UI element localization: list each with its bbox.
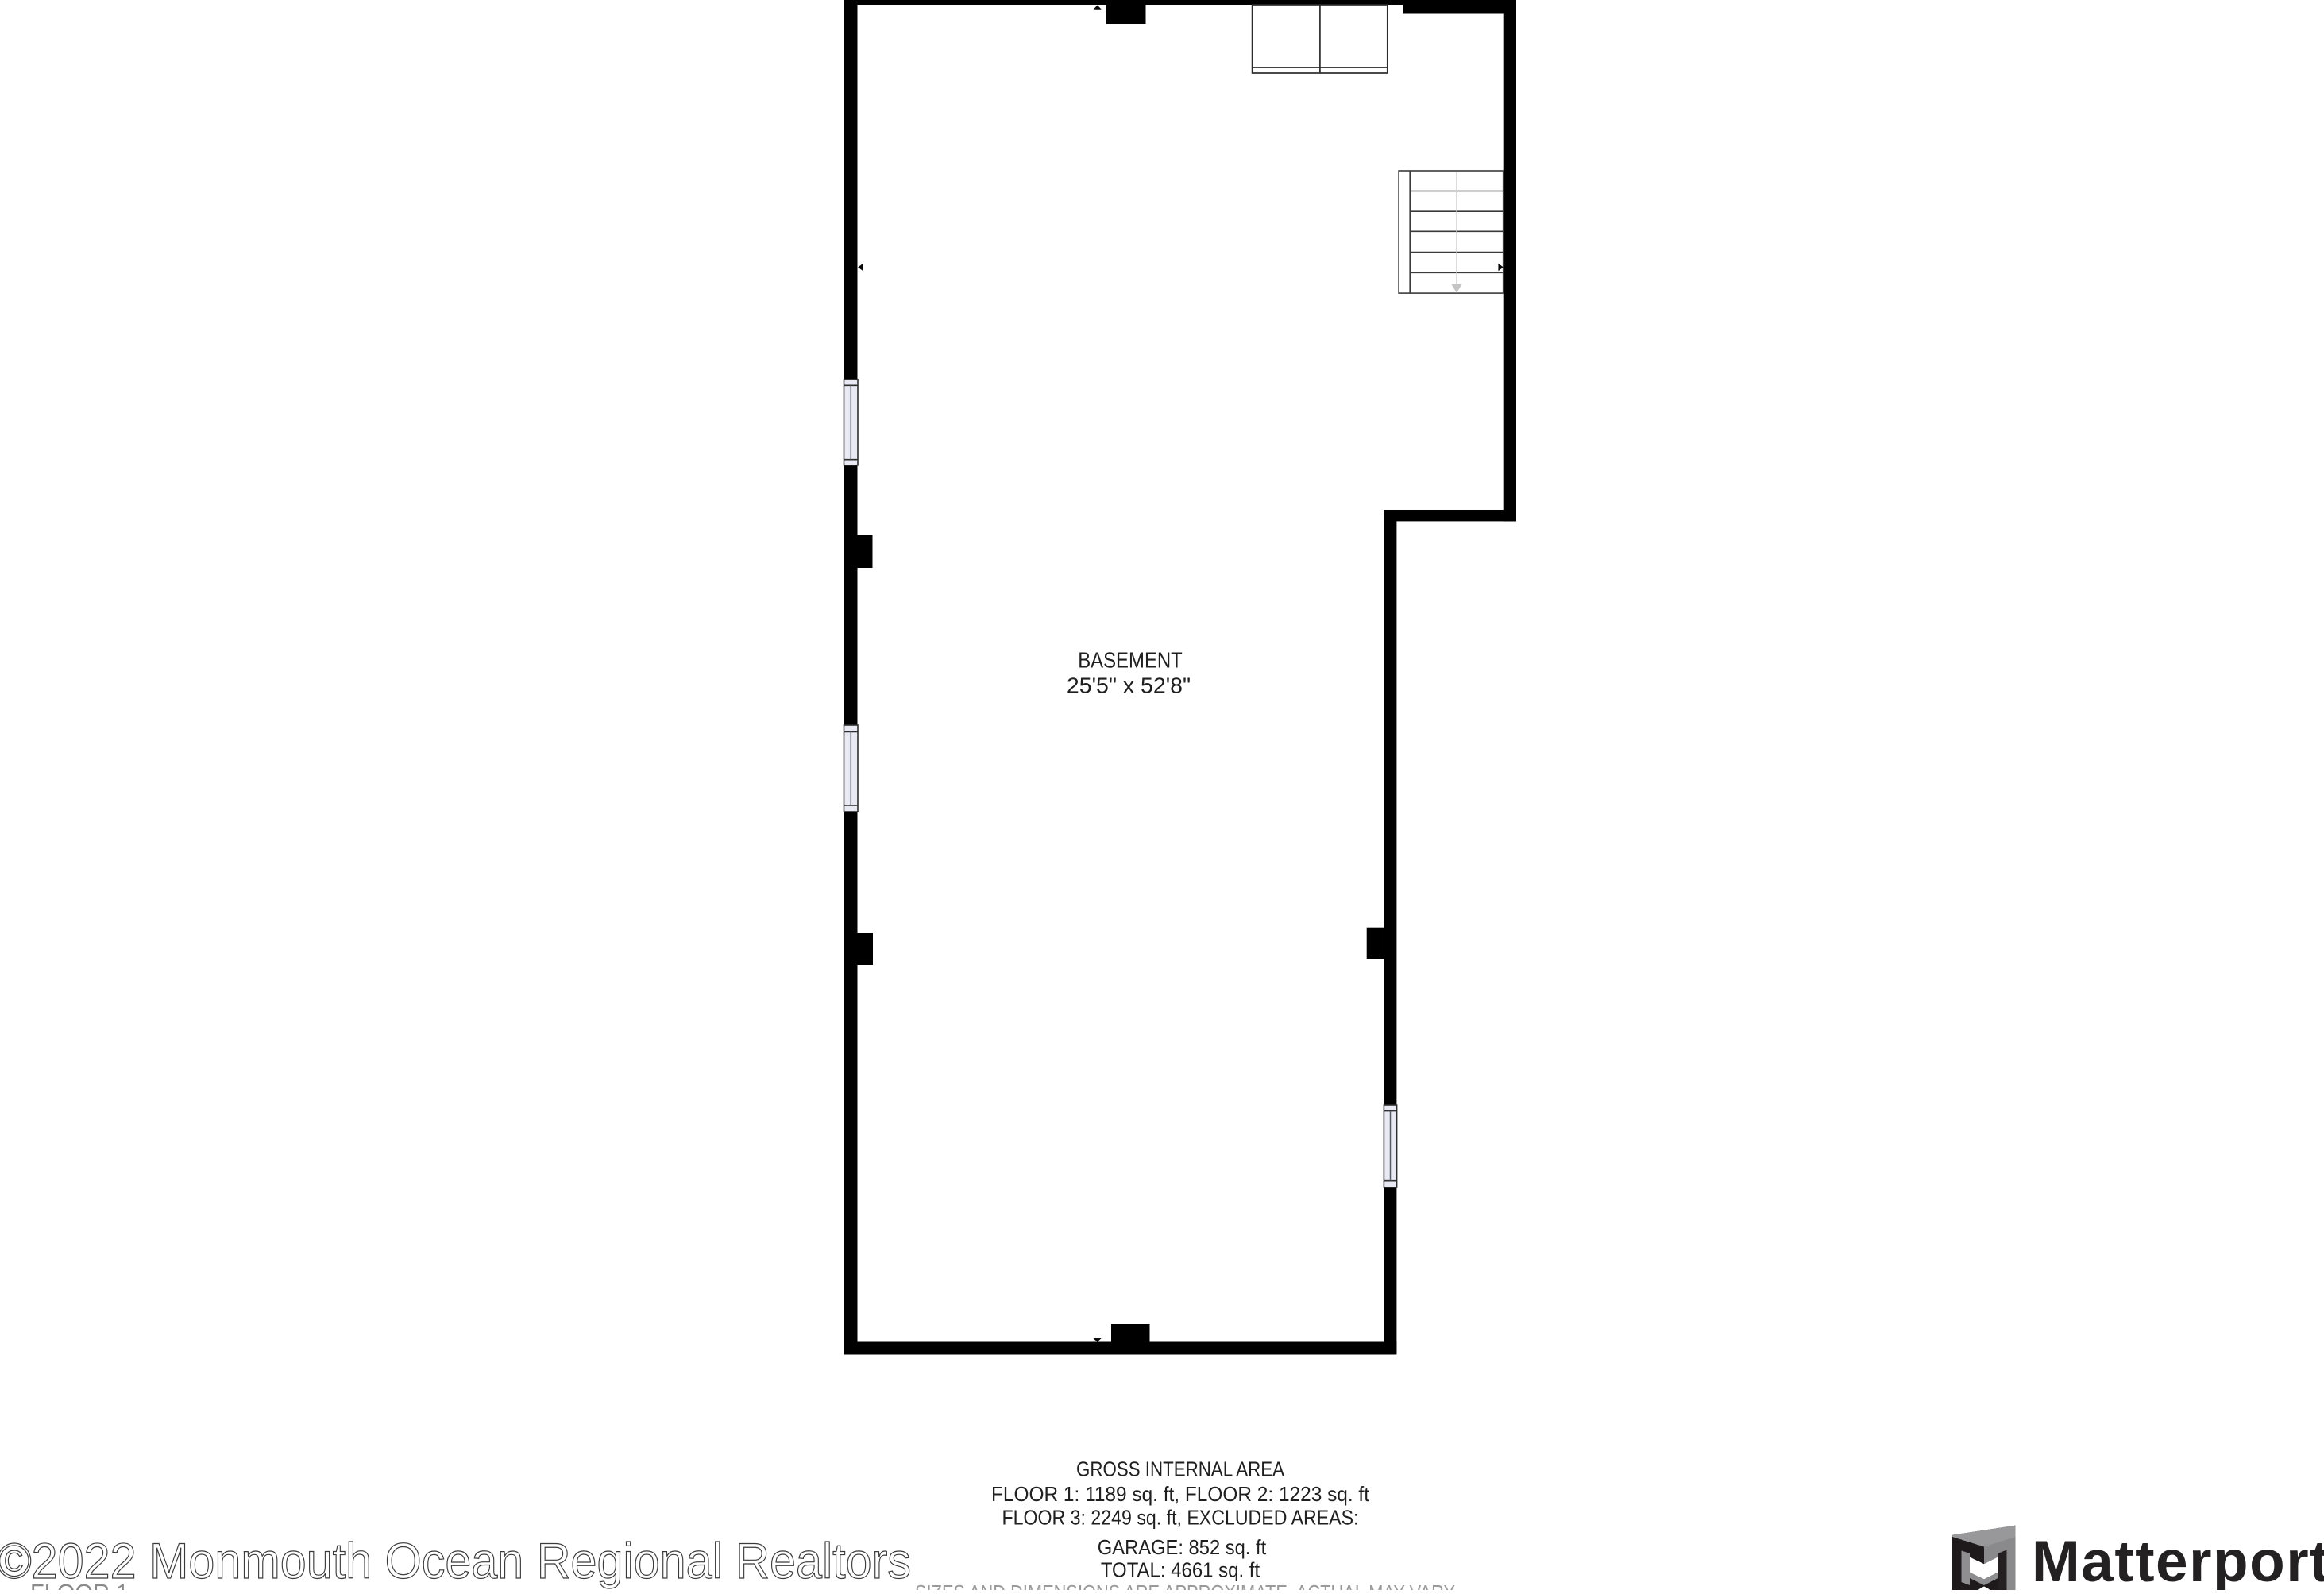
svg-text:FLOOR 1: 1189 sq. ft, FLOOR 2:: FLOOR 1: 1189 sq. ft, FLOOR 2: 1223 sq. … bbox=[991, 1484, 1369, 1506]
svg-text:FLOOR 3: 2249 sq. ft, EXCLUDED: FLOOR 3: 2249 sq. ft, EXCLUDED AREAS: bbox=[1002, 1507, 1359, 1529]
svg-text:GROSS INTERNAL AREA: GROSS INTERNAL AREA bbox=[1076, 1459, 1285, 1481]
svg-text:25'5" x 52'8": 25'5" x 52'8" bbox=[1067, 673, 1191, 698]
svg-text:BASEMENT: BASEMENT bbox=[1078, 647, 1183, 672]
svg-text:SIZES AND DIMENSIONS ARE APPRO: SIZES AND DIMENSIONS ARE APPROXIMATE, AC… bbox=[915, 1582, 1455, 1590]
svg-text:TOTAL: 4661 sq. ft: TOTAL: 4661 sq. ft bbox=[1101, 1560, 1260, 1582]
svg-text:Matterport: Matterport bbox=[2032, 1530, 2324, 1590]
svg-text:GARAGE: 852 sq. ft: GARAGE: 852 sq. ft bbox=[1098, 1537, 1266, 1559]
